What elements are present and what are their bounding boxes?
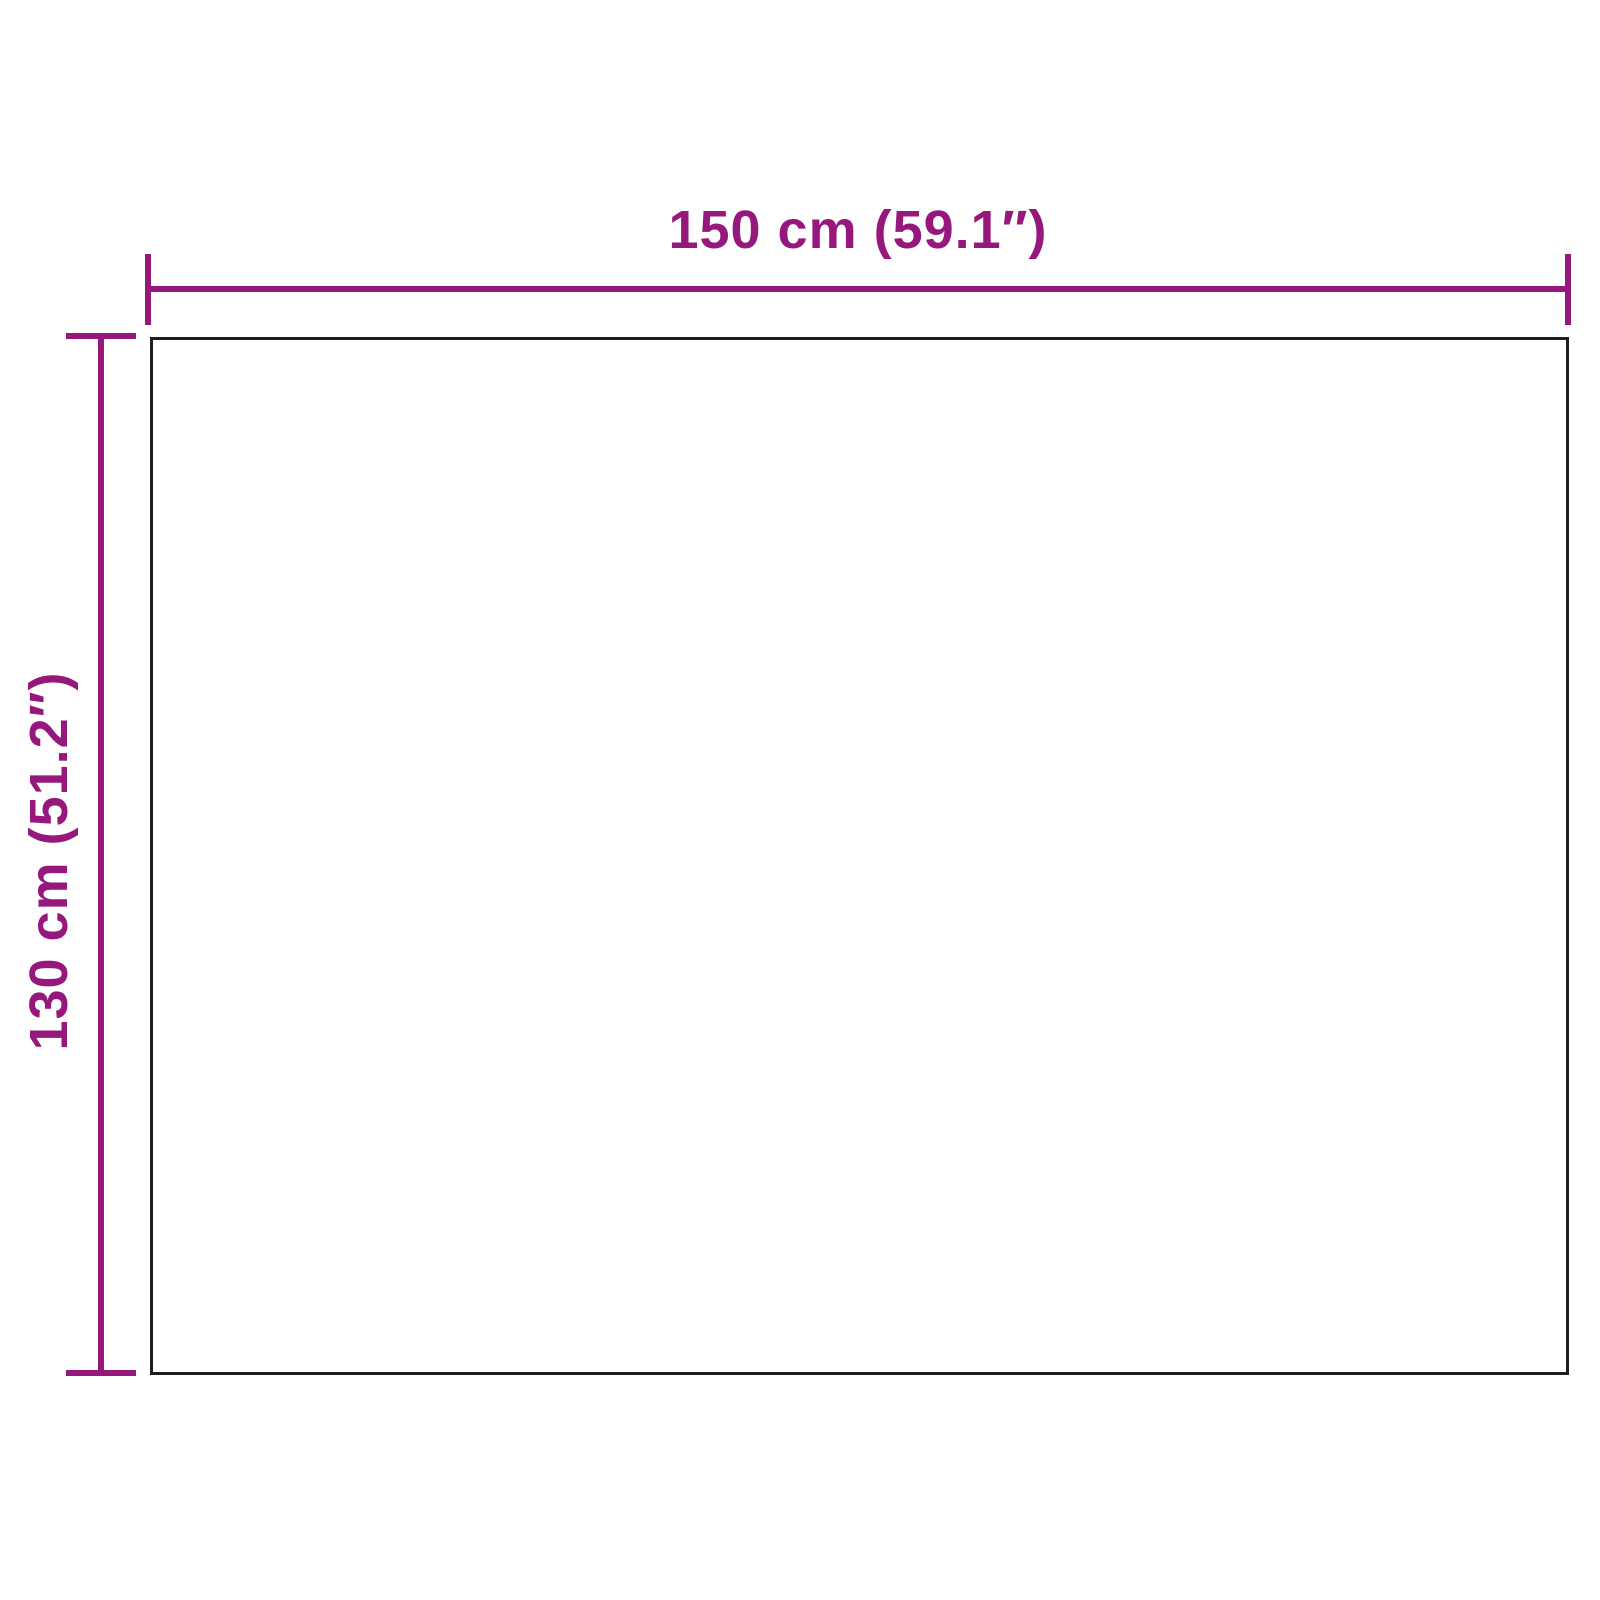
height-dimension-line (98, 336, 104, 1374)
height-dimension-tick-bottom (66, 1370, 136, 1376)
width-dimension-tick-right (1565, 254, 1571, 325)
height-dimension-label: 130 cm (51.2″) (22, 671, 76, 1050)
dimension-diagram: 150 cm (59.1″) 130 cm (51.2″) (0, 0, 1600, 1600)
width-dimension-line (148, 286, 1568, 292)
height-dimension-tick-top (66, 333, 136, 339)
width-dimension-tick-left (145, 254, 151, 325)
product-outline (150, 337, 1569, 1375)
width-dimension-label: 150 cm (59.1″) (148, 203, 1568, 257)
